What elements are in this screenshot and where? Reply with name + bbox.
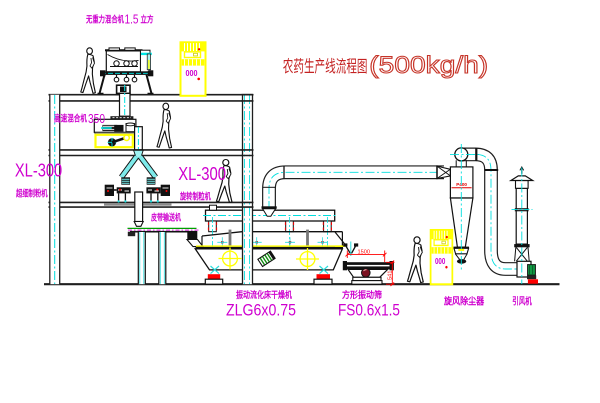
svg-text:立方: 立方	[141, 14, 154, 25]
svg-text:皮带输送机: 皮带输送机	[150, 212, 181, 223]
svg-text:方形振动筛: 方形振动筛	[342, 289, 382, 300]
svg-text:P400: P400	[456, 182, 467, 187]
svg-text:无重力混合机: 无重力混合机	[85, 14, 124, 25]
svg-text:541: 541	[387, 271, 393, 281]
svg-text:旋风除尘器: 旋风除尘器	[443, 296, 484, 308]
svg-text:XL-300: XL-300	[15, 161, 62, 181]
svg-text:XL-300: XL-300	[178, 164, 226, 184]
svg-text:农药生产线流程图: 农药生产线流程图	[283, 57, 368, 76]
svg-text:ZLG6x0.75: ZLG6x0.75	[226, 301, 296, 320]
svg-text:振动流化床干燥机: 振动流化床干燥机	[236, 289, 292, 300]
svg-text:引风机: 引风机	[512, 296, 532, 308]
svg-text:(500kg/h): (500kg/h)	[369, 52, 488, 79]
svg-text:高速混合机: 高速混合机	[54, 113, 87, 124]
svg-text:旋转制粒机: 旋转制粒机	[179, 191, 210, 202]
svg-text:350: 350	[88, 111, 105, 126]
svg-text:1.5: 1.5	[125, 12, 139, 27]
svg-text:FS0.6x1.5: FS0.6x1.5	[338, 301, 400, 320]
svg-text:1500: 1500	[358, 250, 371, 256]
svg-text:超细制粉机: 超细制粉机	[15, 188, 47, 199]
